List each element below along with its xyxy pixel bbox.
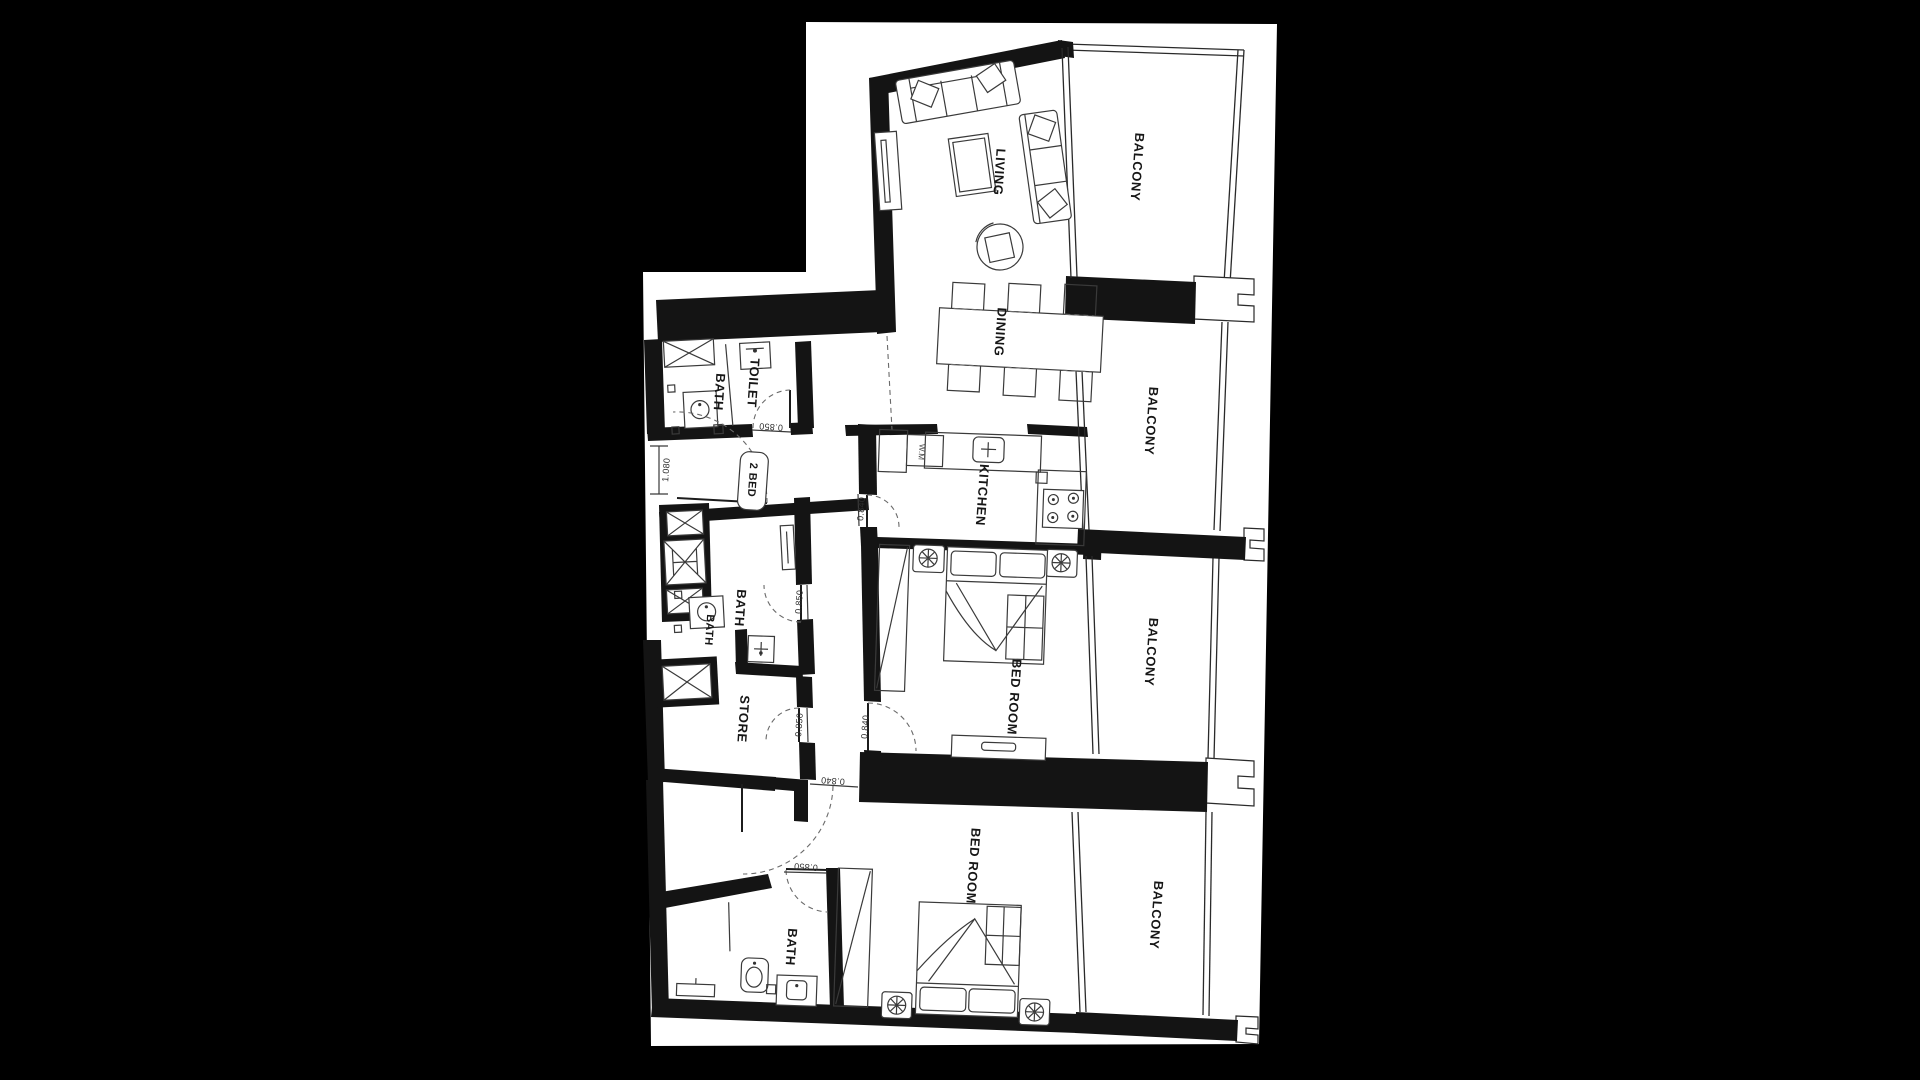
bedroom1-nightstand-left [913,545,945,573]
living-coffee-table [948,133,996,196]
bath-bottom-shower-ledge [676,983,714,996]
label-bath-mid-small: BATH [702,614,716,646]
shaft-store [655,656,719,707]
dim-bath-mid-door: 0.850 [793,589,805,614]
separator-band [859,752,1208,812]
bedroom1-nightstand-right [1046,549,1078,577]
store-east-wall-lower [799,742,816,780]
bath-bottom-wc [741,958,769,993]
label-bath-top: BATH [711,373,729,412]
shaft-mid-1 [666,510,703,536]
shower-tray [748,636,775,663]
dining-table [937,308,1104,373]
label-bath-mid: BATH [732,589,750,628]
floor-plan-canvas: 2 BED LIVING DINING KITCHEN W.M BED ROOM… [0,0,1920,1080]
bath-mid-east-wall-upper [794,497,812,585]
dim-hall-entry: 1.080 [660,457,672,482]
bedroom2-nightstand-left [881,992,912,1019]
dim-bedroom1-door: 0.840 [859,714,871,739]
bedroom1-bed [944,547,1048,664]
dim-kitchen-door: 0.840 [855,496,867,521]
bedroom1-west-wall [861,545,881,702]
living-tv-unit [874,131,901,210]
living-ne-corner-stub [1058,40,1074,58]
bedroom1-west-wall-lower [864,750,882,762]
screenshot-background: 2 BED LIVING DINING KITCHEN W.M BED ROOM… [0,0,1920,1080]
dim-bedroom2-entry: 0.840 [820,775,845,787]
dim-bath-bottom-door: 0.850 [793,861,818,873]
bath-block-west-wall [644,339,665,434]
bedroom1-dresser [951,735,1046,760]
store-east-wall-upper [796,676,813,708]
kitchen-cooktop [1042,489,1083,528]
bedroom2-nightstand-right [1019,998,1050,1025]
kitchen-east-pier [1083,530,1102,560]
bath-bottom-vanity [776,975,817,1006]
bath-top-south-wall-b [790,422,813,435]
corridor-east-wall-stub [860,527,878,546]
unit-title: 2 BED [745,462,759,497]
label-wm: W.M [916,444,926,461]
toilet-east-wall [795,341,814,429]
dim-store-door: 0.850 [793,712,805,737]
shaft-mid-2 [664,539,706,585]
dim-toilet-door: 0.850 [759,421,784,433]
label-bath-bottom: BATH [783,928,801,967]
bedroom2-bed [915,902,1021,1017]
shaft-top [663,339,714,368]
